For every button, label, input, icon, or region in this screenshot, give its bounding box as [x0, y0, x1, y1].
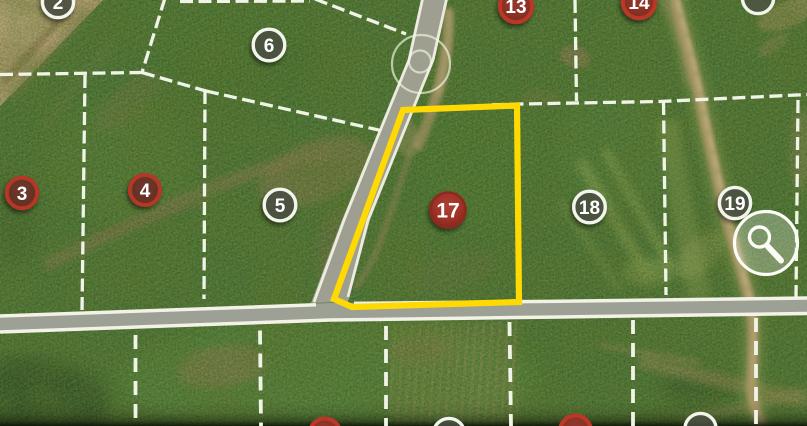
svg-text:17: 17	[436, 200, 459, 223]
svg-text:4: 4	[140, 181, 151, 202]
svg-text:13: 13	[505, 0, 526, 18]
svg-text:18: 18	[579, 198, 600, 219]
svg-text:2: 2	[53, 0, 64, 14]
svg-text:5: 5	[275, 196, 286, 217]
svg-text:19: 19	[724, 194, 745, 215]
svg-text:3: 3	[17, 184, 28, 205]
svg-text:14: 14	[628, 0, 650, 14]
svg-text:6: 6	[264, 36, 275, 57]
